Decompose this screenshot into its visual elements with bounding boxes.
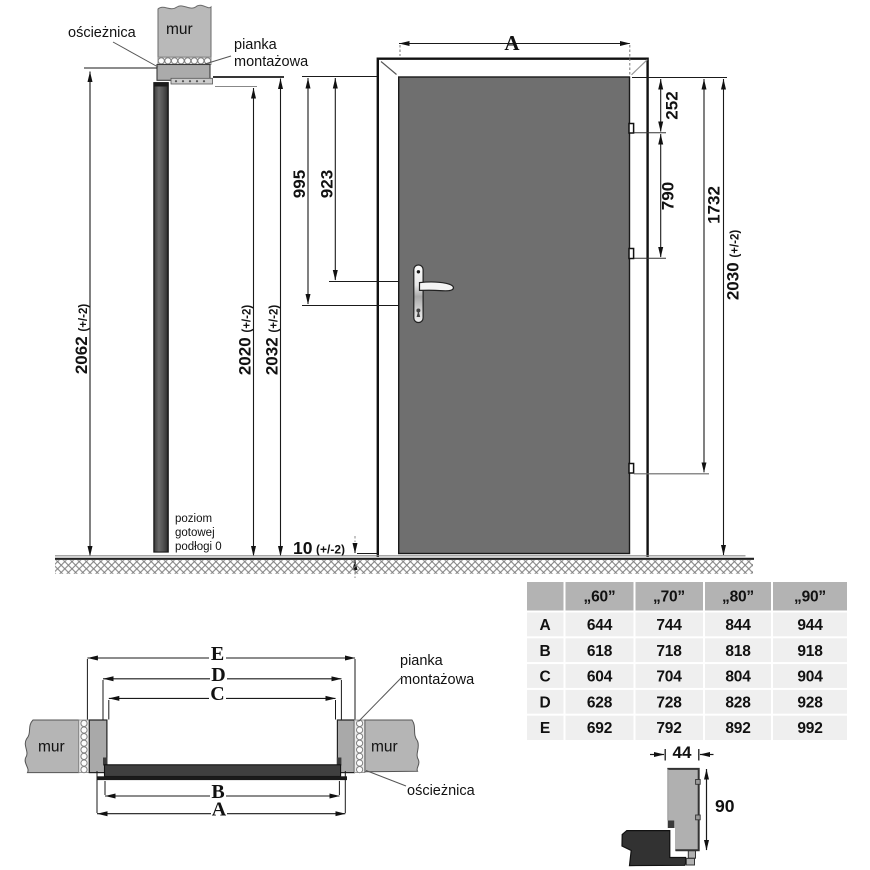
svg-text:892: 892 [725, 720, 750, 737]
svg-text:A: A [212, 799, 227, 821]
svg-text:692: 692 [587, 720, 612, 737]
svg-text:928: 928 [797, 694, 823, 711]
svg-text:(+/-2): (+/-2) [316, 543, 345, 557]
svg-text:gotowej: gotowej [175, 527, 215, 539]
svg-text:804: 804 [725, 669, 751, 686]
svg-text:„80”: „80” [722, 589, 754, 606]
svg-text:744: 744 [656, 617, 682, 634]
svg-text:„70”: „70” [653, 589, 685, 606]
svg-text:818: 818 [725, 643, 751, 660]
svg-text:628: 628 [587, 694, 613, 711]
svg-text:618: 618 [587, 643, 613, 660]
svg-text:704: 704 [656, 669, 682, 686]
svg-text:718: 718 [656, 643, 682, 660]
svg-text:E: E [540, 720, 550, 737]
svg-text:644: 644 [587, 617, 613, 634]
svg-text:mur: mur [371, 739, 398, 756]
svg-text:923: 923 [317, 170, 336, 198]
svg-text:1732: 1732 [705, 186, 724, 224]
svg-text:ościeżnica: ościeżnica [407, 783, 476, 799]
svg-text:ościeżnica: ościeżnica [68, 25, 137, 41]
svg-text:pianka: pianka [400, 653, 444, 669]
svg-text:B: B [540, 643, 551, 660]
svg-text:„60”: „60” [584, 589, 616, 606]
svg-text:904: 904 [797, 669, 823, 686]
svg-text:A: A [540, 617, 551, 634]
svg-text:995: 995 [290, 170, 309, 198]
svg-text:E: E [211, 643, 224, 665]
svg-text:792: 792 [656, 720, 681, 737]
svg-text:„90”: „90” [794, 589, 826, 606]
svg-text:C: C [540, 669, 551, 686]
svg-text:podłogi 0: podłogi 0 [175, 541, 222, 553]
svg-text:918: 918 [797, 643, 823, 660]
svg-text:944: 944 [797, 617, 823, 634]
svg-text:mur: mur [166, 21, 193, 38]
svg-text:790: 790 [659, 182, 678, 210]
svg-text:728: 728 [656, 694, 682, 711]
svg-text:604: 604 [587, 669, 613, 686]
svg-text:A: A [504, 31, 520, 55]
svg-text:10: 10 [293, 538, 313, 558]
svg-text:mur: mur [38, 739, 65, 756]
svg-text:C: C [210, 683, 224, 705]
svg-text:poziom: poziom [175, 513, 212, 525]
svg-text:90: 90 [715, 796, 735, 816]
svg-text:992: 992 [797, 720, 822, 737]
svg-text:844: 844 [725, 617, 751, 634]
svg-text:252: 252 [663, 91, 682, 119]
svg-text:pianka: pianka [234, 37, 278, 53]
svg-text:montażowa: montażowa [400, 672, 475, 688]
svg-text:montażowa: montażowa [234, 54, 309, 70]
svg-text:828: 828 [725, 694, 751, 711]
svg-text:44: 44 [673, 743, 692, 762]
svg-text:D: D [540, 694, 551, 711]
